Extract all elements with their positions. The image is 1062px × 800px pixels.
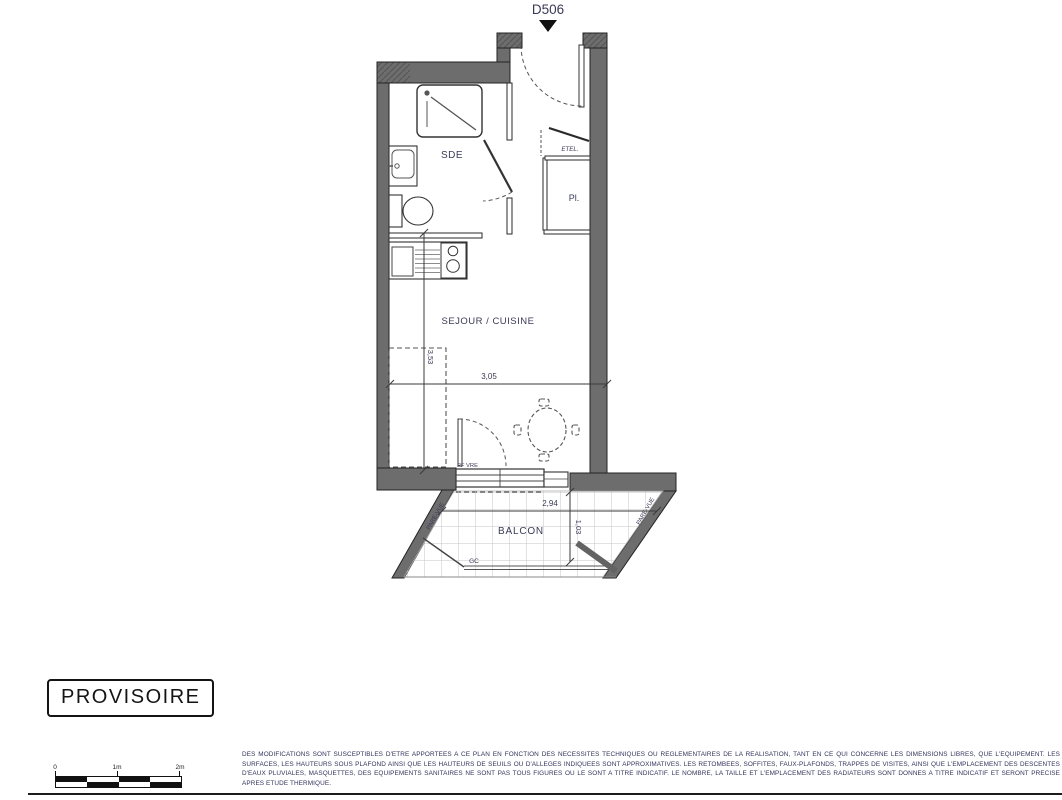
scale-tick-1m: 1m (112, 764, 121, 771)
living-door (458, 419, 506, 466)
dim-balcony-width: 2,94 (542, 499, 558, 508)
toilet-icon (389, 195, 433, 227)
shower-icon (417, 85, 482, 137)
window-pf: PF VRE (456, 463, 568, 492)
dim-living-height: 3,53 (426, 350, 435, 365)
sde-door (483, 140, 512, 201)
railing-label: GC (469, 558, 479, 565)
entrance-arrow-icon (539, 20, 557, 32)
sink-icon (388, 146, 417, 186)
sde-room: SDE (388, 85, 512, 227)
bed-outline (389, 348, 446, 467)
bottom-rule (28, 793, 1062, 795)
scale-tick-2m: 2m (175, 764, 184, 771)
scale-bar-segments (55, 776, 182, 788)
closet-label: Pl. (569, 193, 580, 203)
dim-living-width: 3,05 (481, 372, 497, 381)
scale-bar: 0 1m 2m (45, 764, 195, 792)
closet-shelf-label: ETEL. (561, 146, 578, 153)
dim-balcony-depth: 1,03 (574, 520, 583, 535)
entrance-door (521, 45, 584, 107)
living-label: SEJOUR / CUISINE (442, 316, 535, 327)
window-label: PF VRE (457, 463, 478, 469)
table-and-chairs (514, 399, 579, 461)
balcony-label: BALCON (498, 526, 544, 537)
sde-label: SDE (441, 150, 463, 161)
cooktop-icon (441, 243, 466, 278)
kitchen-sink-icon (392, 247, 413, 276)
disclaimer-text: DES MODIFICATIONS SONT SUSCEPTIBLES D'ET… (242, 750, 1060, 788)
floor-plan-page: D506 (0, 0, 1062, 800)
unit-title: D506 (532, 2, 564, 17)
provisoire-stamp: PROVISOIRE (47, 679, 214, 717)
scale-tick-0: 0 (53, 764, 57, 771)
kitchen-counter (389, 242, 467, 279)
closet: ETEL. Pl. (541, 128, 589, 203)
